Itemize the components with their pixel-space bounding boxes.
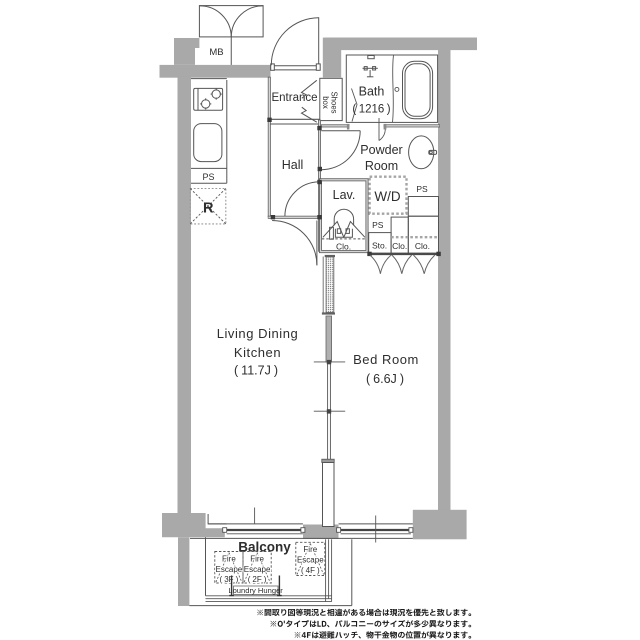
svg-text:Living Dining: Living Dining xyxy=(217,326,299,341)
svg-text:Powder: Powder xyxy=(360,143,402,157)
svg-text:PS: PS xyxy=(202,172,214,182)
svg-text:Fire: Fire xyxy=(303,545,317,554)
svg-text:Entrance: Entrance xyxy=(271,92,317,104)
svg-text:R: R xyxy=(203,201,214,217)
svg-text:Escape: Escape xyxy=(244,565,271,574)
svg-text:Balcony: Balcony xyxy=(238,540,291,555)
svg-text:Loundry Hunger: Loundry Hunger xyxy=(228,586,283,595)
svg-text:Bath: Bath xyxy=(359,85,385,99)
svg-text:Escape: Escape xyxy=(216,565,243,574)
svg-text:Fire: Fire xyxy=(250,555,264,564)
svg-text:PS: PS xyxy=(416,184,428,194)
svg-text:Kitchen: Kitchen xyxy=(234,345,281,360)
svg-text:Fire: Fire xyxy=(222,555,236,564)
svg-text:Hall: Hall xyxy=(282,158,304,172)
svg-text:Room: Room xyxy=(365,159,398,173)
svg-text:Escape: Escape xyxy=(297,556,324,565)
svg-text:W/D: W/D xyxy=(374,189,400,204)
svg-text:PS: PS xyxy=(372,220,384,230)
svg-text:Bed Room: Bed Room xyxy=(353,352,419,367)
svg-text:Clo.: Clo. xyxy=(336,242,351,252)
svg-text:Clo.: Clo. xyxy=(415,241,430,251)
svg-text:MB: MB xyxy=(209,47,223,58)
svg-text:Lav.: Lav. xyxy=(333,188,356,202)
svg-text:Clo.: Clo. xyxy=(392,241,407,251)
svg-text:Sto.: Sto. xyxy=(372,241,387,251)
